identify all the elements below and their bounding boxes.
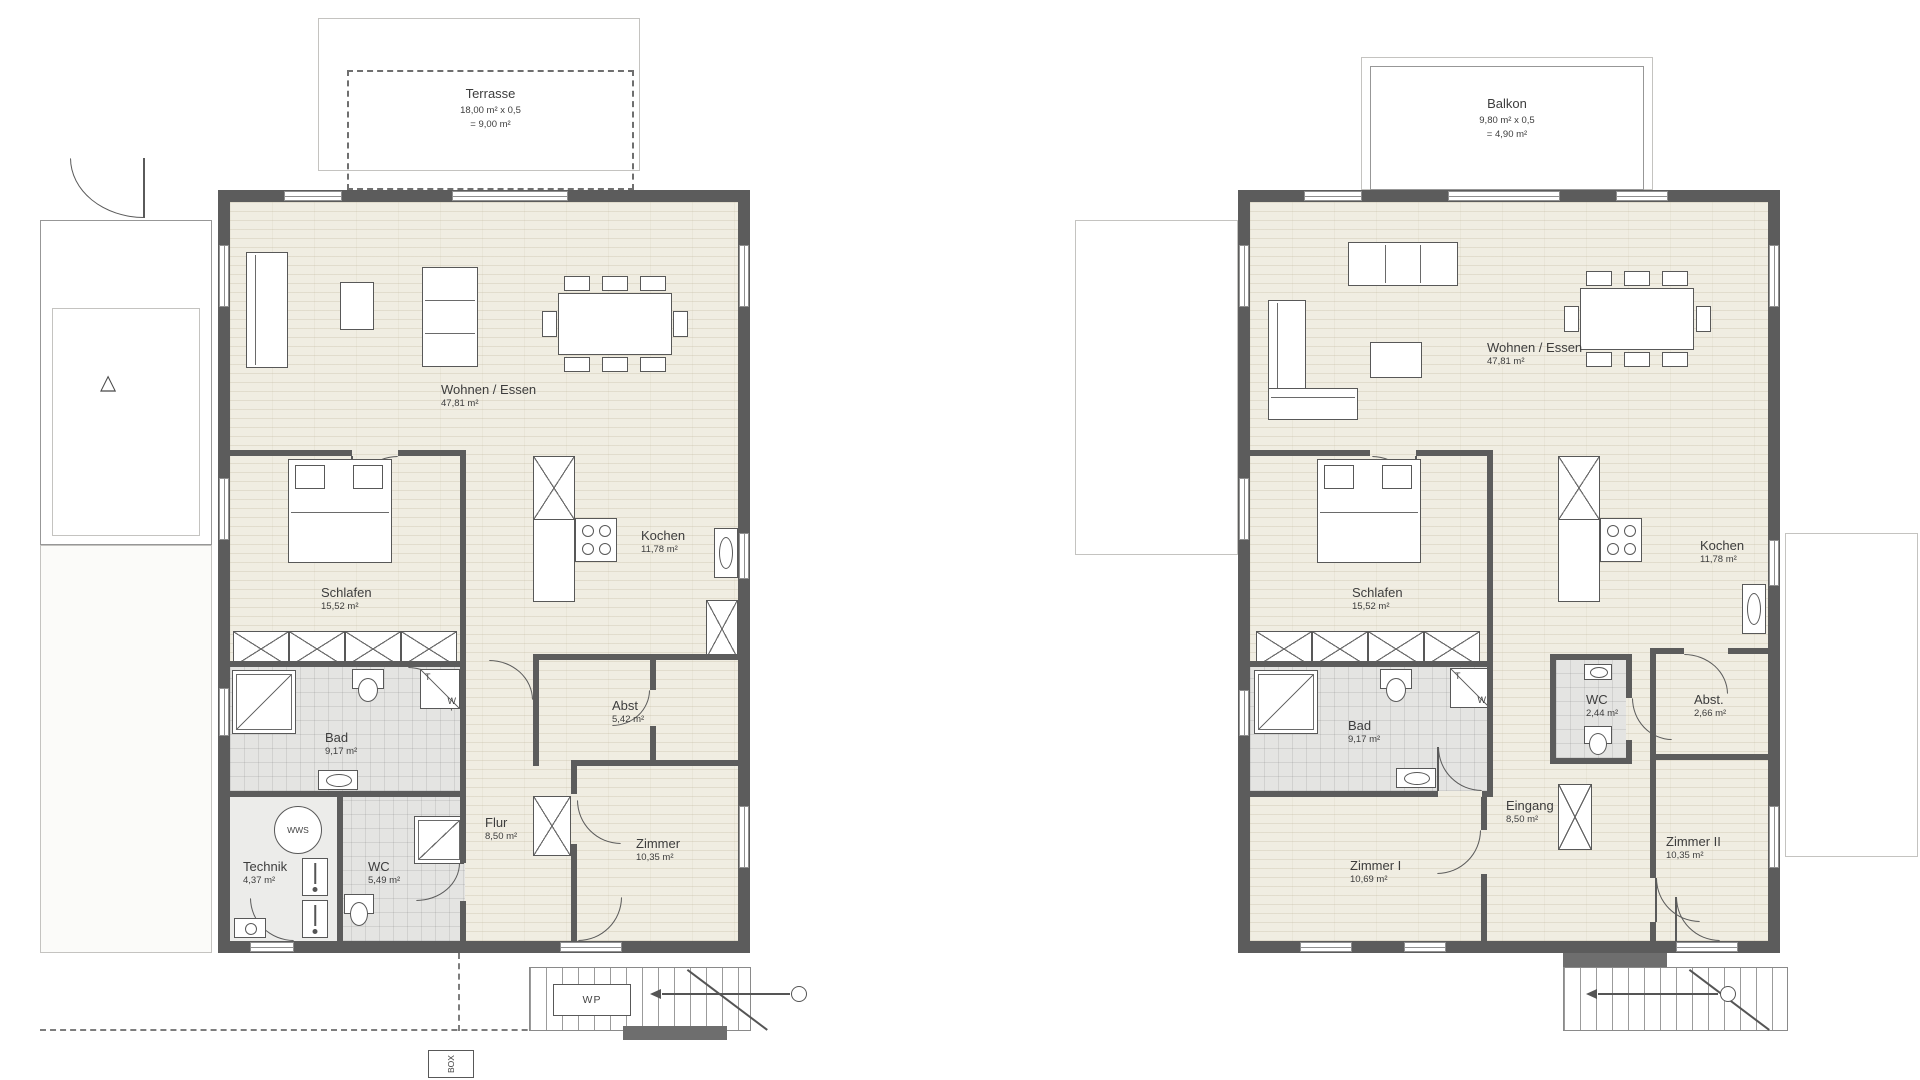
wall [1550, 660, 1556, 764]
sink [318, 770, 358, 790]
stove [575, 518, 617, 562]
chair [1586, 271, 1612, 286]
window [1239, 690, 1249, 736]
toilet-bowl [350, 902, 368, 926]
wall [460, 667, 466, 863]
wall [1626, 660, 1632, 698]
sink [1396, 768, 1436, 788]
chair [542, 311, 557, 337]
wall [1728, 648, 1768, 654]
toilet-bowl [1589, 733, 1607, 755]
wall [460, 450, 466, 667]
side-table [340, 282, 374, 330]
reference-marker [791, 986, 807, 1002]
room-label-bad: Bad9,17 m² [1348, 718, 1380, 745]
door-leaf [1675, 897, 1677, 941]
garage-door-triangle-icon: △ [100, 372, 116, 393]
wall [1550, 654, 1632, 660]
stair-direction-arrow [1586, 989, 1597, 999]
dining-table [558, 293, 672, 355]
window [739, 806, 749, 868]
chair [564, 357, 590, 372]
shower [232, 670, 296, 734]
window [1239, 245, 1249, 307]
wall [230, 450, 352, 456]
wall [1650, 760, 1656, 878]
window [1769, 806, 1779, 868]
hot-water-tank: WWS [274, 806, 322, 854]
room-label-kochen: Kochen11,78 m² [1700, 538, 1744, 565]
room-label-eingang: Eingang8,50 m² [1506, 798, 1554, 825]
room-label-wc: WC5,49 m² [368, 859, 400, 886]
room-label-zimmer: Zimmer10,35 m² [636, 836, 680, 863]
site-boundary-dashed [458, 953, 460, 1031]
storage-box: BOX [428, 1050, 474, 1078]
entrance-door [560, 942, 622, 952]
chair [640, 276, 666, 291]
door-leaf [143, 158, 145, 218]
neighbor-roof-outline [1785, 533, 1918, 857]
shower [414, 816, 464, 864]
wardrobe [1558, 784, 1592, 850]
chair [1586, 352, 1612, 367]
sofa [1268, 388, 1358, 420]
wall [398, 450, 466, 456]
terrace-label: Terrasse 18,00 m² x 0,5 = 9,00 m² [347, 86, 634, 132]
wall [571, 766, 577, 794]
wall [1481, 874, 1487, 941]
kitchen-sink [1742, 584, 1766, 634]
balcony-label: Balkon 9,80 m² x 0,5 = 4,90 m² [1370, 96, 1644, 142]
wardrobe [533, 796, 571, 856]
pillow [353, 465, 383, 489]
wall [1238, 202, 1250, 941]
wall [533, 654, 738, 660]
double-bed [288, 459, 392, 563]
chair [602, 276, 628, 291]
window [1300, 942, 1352, 952]
coffee-table [1370, 342, 1422, 378]
exterior-door [250, 942, 294, 952]
wall [1250, 450, 1370, 456]
toilet-bowl [1386, 678, 1406, 702]
chair [673, 311, 688, 337]
room-label-flur: Flur8,50 m² [485, 815, 517, 842]
stair-direction-arrow [650, 989, 661, 999]
floorplan-canvas: Terrasse 18,00 m² x 0,5 = 9,00 m² △ BOX [0, 0, 1920, 1080]
wall [571, 760, 738, 766]
chair [1564, 306, 1579, 332]
window [1616, 191, 1668, 201]
pillow [295, 465, 325, 489]
stair-direction-line [1598, 993, 1718, 995]
wall [230, 661, 466, 667]
chair [1662, 271, 1688, 286]
chair [1696, 306, 1711, 332]
room-label-wohnen-essen: Wohnen / Essen47,81 m² [1487, 340, 1582, 367]
wall [1250, 791, 1438, 797]
wall [1650, 754, 1768, 760]
toilet-bowl [358, 678, 378, 702]
entrance-door [1676, 942, 1738, 952]
technik-unit [234, 918, 266, 938]
window [219, 478, 229, 540]
room-label-abst: Abst5,42 m² [612, 698, 644, 725]
chair [1624, 352, 1650, 367]
chair [602, 357, 628, 372]
wall [1650, 648, 1656, 760]
window [219, 688, 229, 736]
stove [1600, 518, 1642, 562]
wall [1250, 661, 1487, 667]
room-label-schlafen: Schlafen15,52 m² [1352, 585, 1403, 612]
balcony-door [1448, 191, 1560, 201]
window [284, 191, 342, 201]
dining-table [1580, 288, 1694, 350]
wall [1550, 758, 1632, 764]
pillow [1324, 465, 1354, 489]
room-label-abst: Abst.2,66 m² [1694, 692, 1726, 719]
window [219, 245, 229, 307]
room-label-schlafen: Schlafen15,52 m² [321, 585, 372, 612]
wall [218, 941, 750, 953]
heating-unit [302, 900, 328, 938]
kitchen-cabinet [533, 456, 575, 520]
wall [1650, 922, 1656, 941]
kitchen-cabinet [1558, 456, 1600, 520]
room-label-zimmer-1: Zimmer I10,69 m² [1350, 858, 1401, 885]
wall [1416, 450, 1487, 456]
kitchen-sink [714, 528, 738, 578]
shower [1254, 670, 1318, 734]
sofa [246, 252, 288, 368]
chair [1624, 271, 1650, 286]
sideboard [1348, 242, 1458, 286]
room-label-bad: Bad9,17 m² [325, 730, 357, 757]
window [1239, 478, 1249, 540]
room-label-wc: WC2,44 m² [1586, 692, 1618, 719]
wall [571, 844, 577, 941]
wall [460, 901, 466, 941]
garage-roof-outline [1075, 220, 1238, 555]
room-label-wohnen-essen: Wohnen / Essen47,81 m² [441, 382, 536, 409]
chair [564, 276, 590, 291]
wall [218, 202, 230, 941]
wall [1481, 797, 1487, 830]
pillow [1382, 465, 1412, 489]
wall [650, 660, 656, 690]
exterior-stairs [1563, 967, 1788, 1031]
sideboard [422, 267, 478, 367]
chair [1662, 352, 1688, 367]
stair-landing [623, 1026, 727, 1040]
window [739, 245, 749, 307]
chair [640, 357, 666, 372]
room-label-technik: Technik4,37 m² [243, 859, 287, 886]
tall-cabinet [706, 600, 738, 658]
stair-landing [1563, 953, 1667, 967]
room-label-zimmer-2: Zimmer II10,35 m² [1666, 834, 1721, 861]
window [1769, 245, 1779, 307]
window [1769, 540, 1779, 586]
wall [230, 791, 466, 797]
window [1404, 942, 1446, 952]
wall [337, 797, 343, 941]
sink [1584, 664, 1612, 680]
room-label-kochen: Kochen11,78 m² [641, 528, 685, 555]
double-bed [1317, 459, 1421, 563]
heat-pump: WP [553, 984, 631, 1016]
window [739, 533, 749, 579]
door-leaf [1655, 878, 1657, 922]
terrace-door [452, 191, 568, 201]
window [1304, 191, 1362, 201]
wall [533, 660, 539, 766]
washer-dryer: T W [420, 669, 460, 709]
door-leaf [1437, 747, 1439, 791]
stair-direction-line [662, 993, 790, 995]
heating-unit [302, 858, 328, 896]
washer-dryer: T W [1450, 668, 1490, 708]
wall [1487, 450, 1493, 797]
reference-marker [1720, 986, 1736, 1002]
